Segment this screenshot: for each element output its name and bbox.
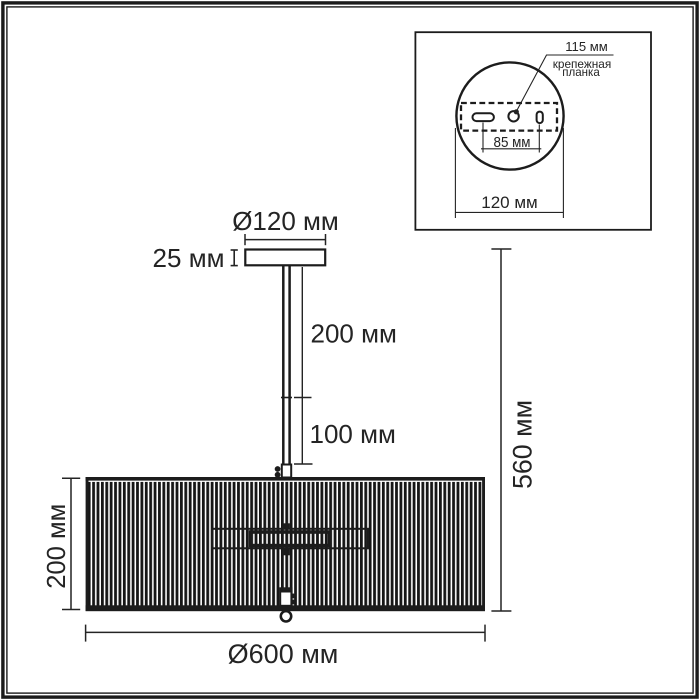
svg-text:планка: планка: [562, 65, 600, 79]
svg-text:115 мм: 115 мм: [565, 39, 608, 54]
svg-text:Ø120 мм: Ø120 мм: [232, 206, 339, 236]
svg-text:120 мм: 120 мм: [481, 193, 537, 212]
svg-text:560 мм: 560 мм: [508, 400, 538, 489]
svg-text:Ø600 мм: Ø600 мм: [228, 639, 339, 669]
svg-text:25 мм: 25 мм: [153, 243, 225, 273]
svg-text:85 мм: 85 мм: [494, 134, 531, 151]
svg-text:200 мм: 200 мм: [311, 319, 397, 349]
svg-text:100 мм: 100 мм: [310, 419, 396, 449]
svg-text:200 мм: 200 мм: [41, 504, 71, 589]
